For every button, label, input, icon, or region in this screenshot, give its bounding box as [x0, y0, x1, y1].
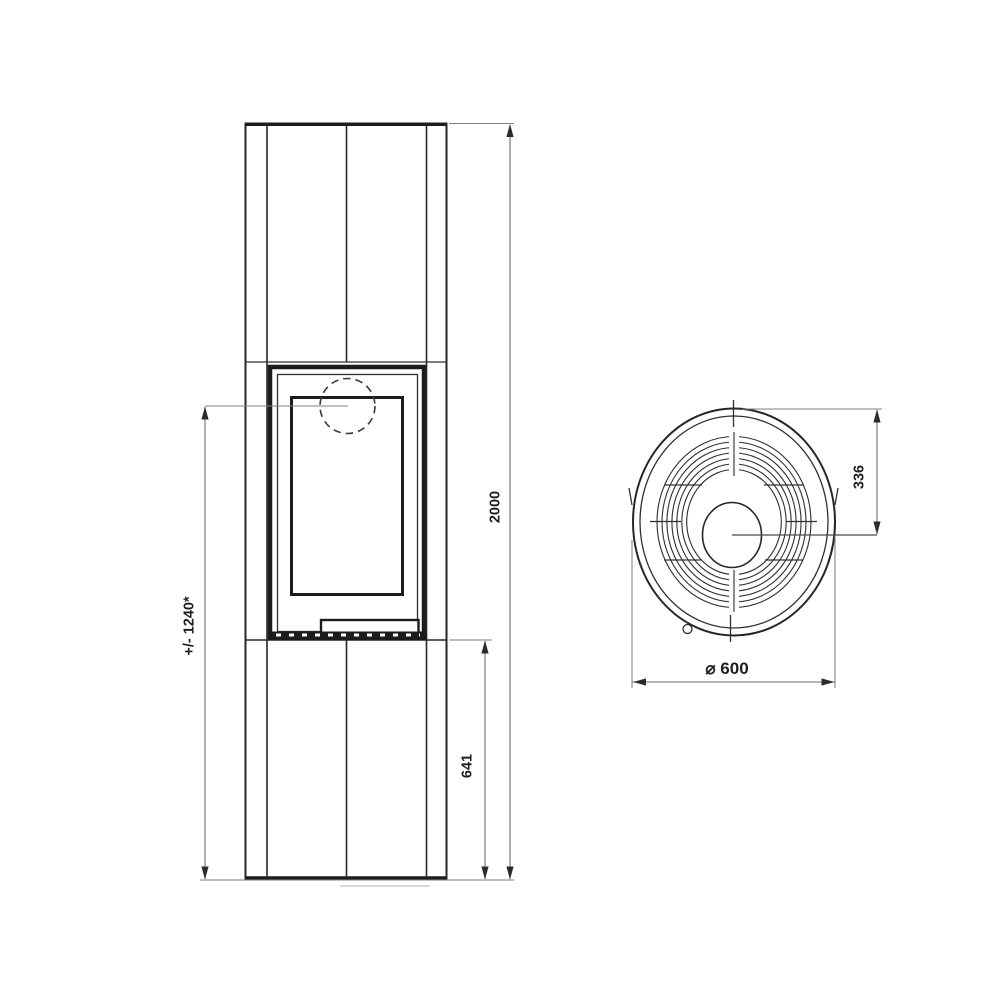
arrowhead-down: [873, 522, 880, 535]
technical-drawing-page: 2000 +/- 1240* 641: [0, 0, 1000, 1000]
ring: [677, 459, 791, 586]
arrowhead-up: [873, 410, 880, 423]
arrowhead-down: [201, 867, 208, 880]
dimension-label-336: 336: [852, 465, 868, 489]
arrowhead-up: [201, 407, 208, 420]
arrowhead-down: [481, 867, 488, 880]
top-ring-pattern: [650, 430, 817, 614]
rim-tick-right: [835, 488, 838, 505]
dimension-label-641: 641: [460, 754, 476, 778]
dimension-label-2000: 2000: [488, 491, 504, 523]
arrowhead-right: [822, 678, 835, 685]
rim-knob: [683, 625, 692, 634]
arrowhead-up: [506, 124, 513, 137]
dimension-label-diameter: ⌀ 600: [705, 659, 748, 678]
door-vent-strip: [272, 632, 422, 639]
door-bottom-lip: [321, 620, 419, 634]
dimension-flue-offset: 336: [742, 409, 882, 535]
stove-dimension-drawing: 2000 +/- 1240* 641: [0, 0, 1000, 1000]
arrowhead-down: [506, 867, 513, 880]
ring: [682, 464, 786, 580]
arrowhead-left: [633, 678, 646, 685]
rim-tick-left: [629, 488, 632, 505]
top-view: 336 ⌀ 600: [629, 400, 882, 688]
stove-door: [270, 367, 424, 639]
front-view: 2000 +/- 1240* 641: [182, 124, 515, 887]
dimension-label-1240: +/- 1240*: [182, 596, 198, 656]
door-glass-window: [292, 398, 403, 595]
dimension-lower-section: 641: [449, 640, 492, 880]
arrowhead-up: [481, 641, 488, 654]
